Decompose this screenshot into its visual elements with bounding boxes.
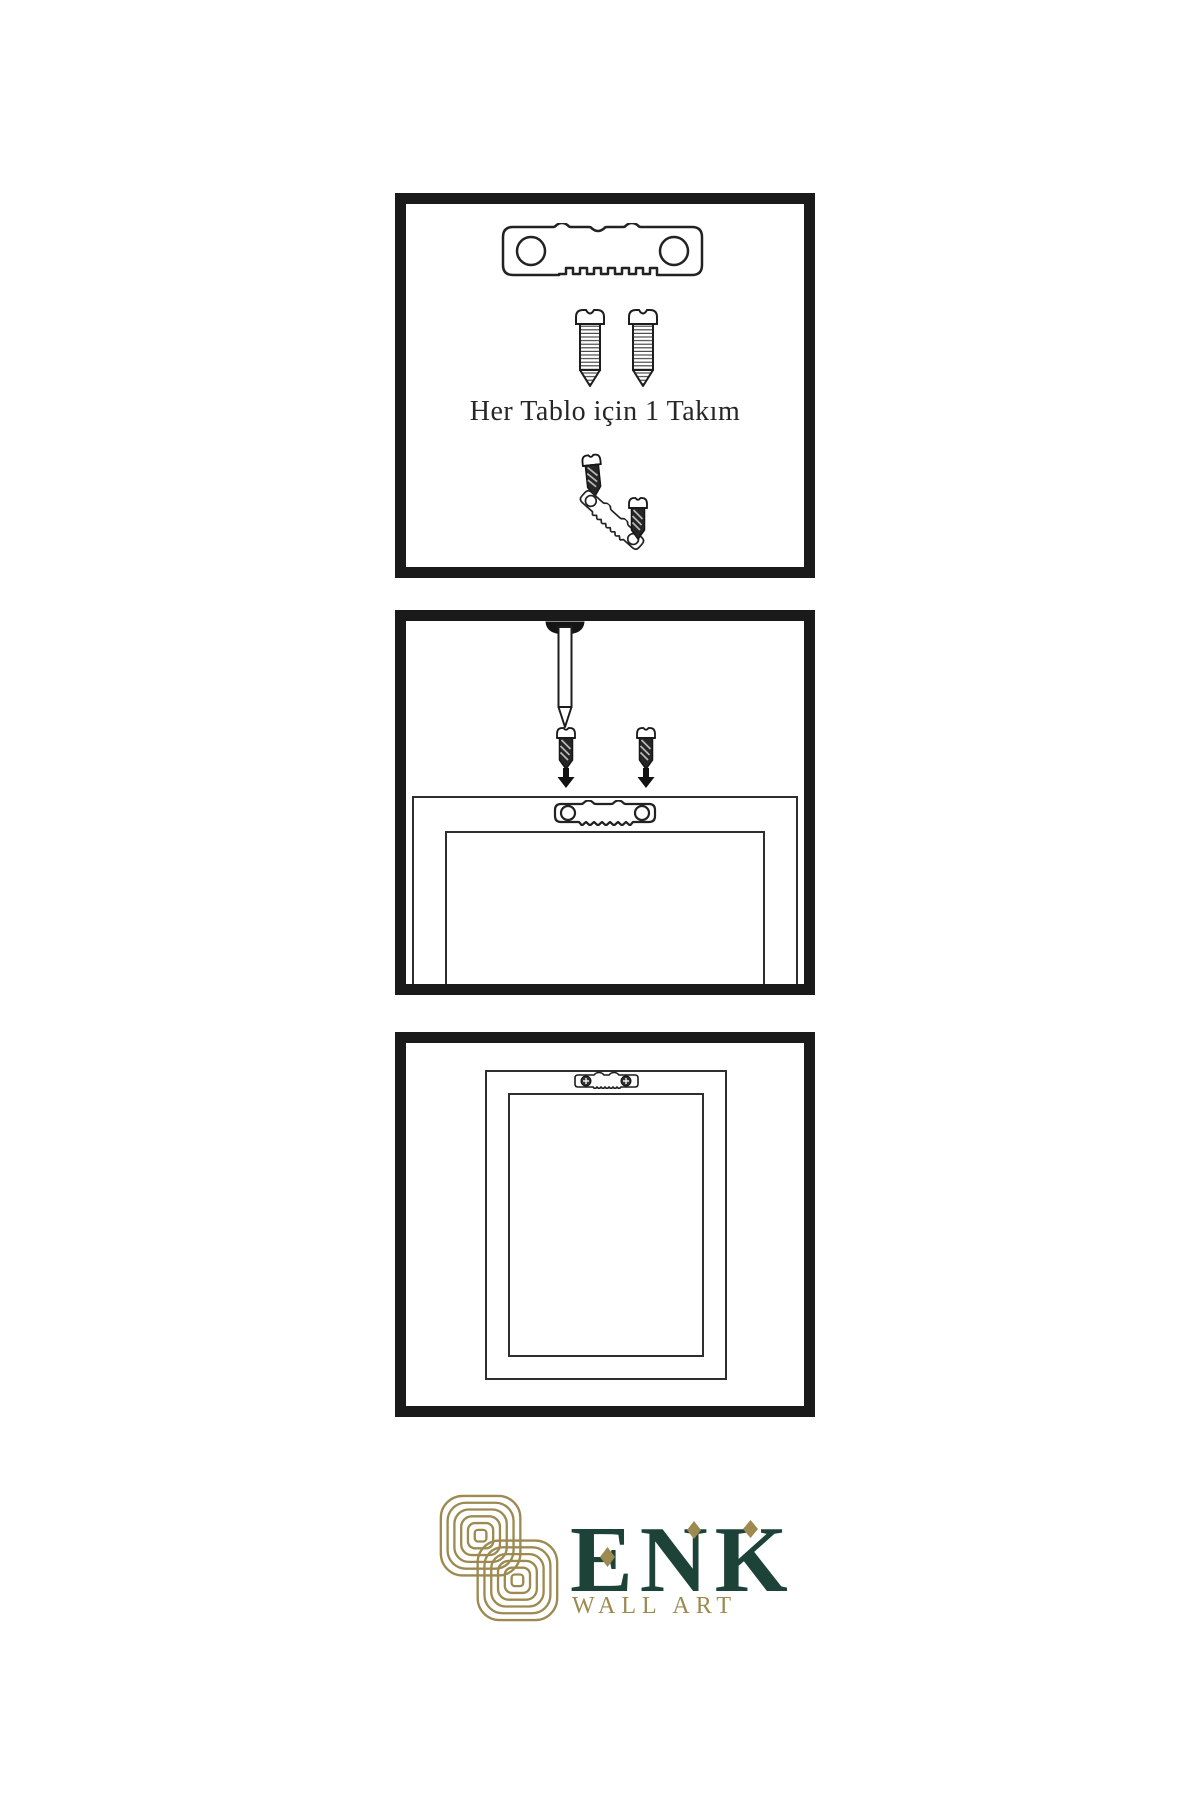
wall-nail-icon <box>545 621 585 729</box>
frame-back-inner-edge <box>445 831 765 986</box>
screw-icon <box>623 307 663 389</box>
down-arrow-icon <box>637 768 655 788</box>
screw-icon <box>570 307 610 389</box>
down-arrow-icon <box>557 768 575 788</box>
step2-panel <box>395 610 815 995</box>
sawtooth-hanger-icon <box>553 800 657 826</box>
frame-back-inner-edge <box>508 1093 704 1357</box>
sawtooth-hanger-icon <box>495 223 710 279</box>
instruction-sheet: Her Tablo için 1 Takım ENK WALL ART <box>0 0 1200 1800</box>
step1-panel: Her Tablo için 1 Takım <box>395 193 815 578</box>
dark-screw-icon <box>555 726 577 772</box>
dark-screw-icon <box>627 496 649 542</box>
dark-screw-icon <box>635 726 657 772</box>
mounted-hanger-icon <box>573 1071 640 1089</box>
step1-caption: Her Tablo için 1 Takım <box>406 396 804 428</box>
brand-logo: ENK WALL ART <box>430 1485 810 1650</box>
step3-panel <box>395 1032 815 1417</box>
knot-logo-icon <box>435 1490 563 1626</box>
brand-subtitle: WALL ART <box>572 1594 737 1618</box>
